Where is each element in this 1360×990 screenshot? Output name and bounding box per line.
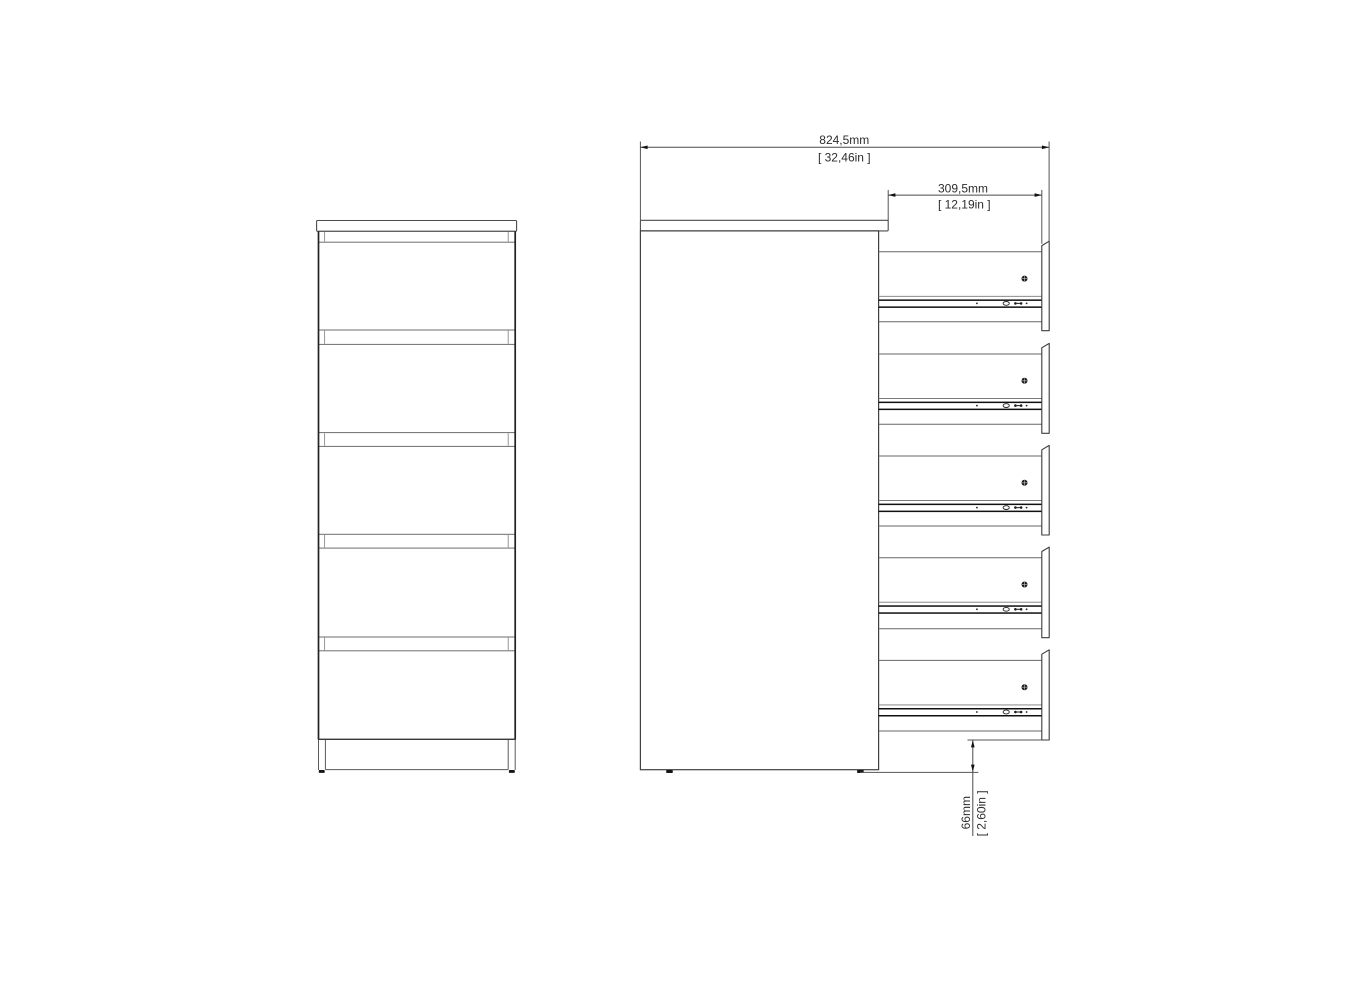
svg-text:66mm: 66mm [959, 796, 973, 829]
svg-text:[ 12,19in ]: [ 12,19in ] [938, 197, 991, 211]
svg-text:[ 32,46in ]: [ 32,46in ] [818, 151, 871, 165]
svg-text:309,5mm: 309,5mm [938, 181, 988, 195]
svg-text:824,5mm: 824,5mm [819, 133, 869, 147]
svg-text:[ 2,60in ]: [ 2,60in ] [975, 790, 989, 836]
